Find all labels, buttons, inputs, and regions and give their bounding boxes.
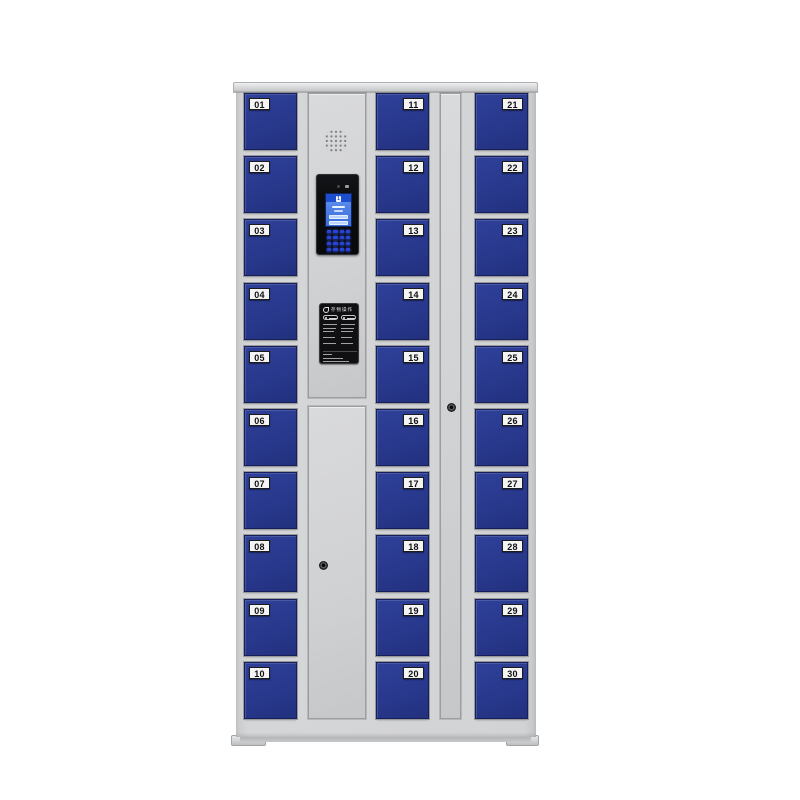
keypad-key[interactable] [327, 230, 331, 234]
locker-door-28[interactable]: 28 [475, 535, 528, 592]
locker-door-15[interactable]: 15 [376, 346, 429, 403]
locker-door-29[interactable]: 29 [475, 599, 528, 656]
control-unit: 1 [316, 174, 359, 255]
locker-number-label: 27 [502, 477, 523, 489]
locker-door-13[interactable]: 13 [376, 219, 429, 276]
locker-door-02[interactable]: 02 [244, 156, 297, 213]
keyhole-icon [447, 403, 456, 412]
locker-number-label: 19 [403, 604, 424, 616]
deposit-step-pill [323, 315, 338, 320]
speaker-grille-icon [324, 129, 348, 153]
locker-number-label: 23 [502, 224, 523, 236]
locker-door-01[interactable]: 01 [244, 93, 297, 150]
locker-door-07[interactable]: 07 [244, 472, 297, 529]
retrieve-step-pill [341, 315, 356, 320]
screen-text-line [332, 206, 345, 208]
locker-door-22[interactable]: 22 [475, 156, 528, 213]
locker-number-label: 05 [249, 351, 270, 363]
locker-number-label: 16 [403, 414, 424, 426]
locker-door-30[interactable]: 30 [475, 662, 528, 719]
locker-number-label: 18 [403, 540, 424, 552]
locker-number-label: 04 [249, 288, 270, 300]
locker-door-26[interactable]: 26 [475, 409, 528, 466]
locker-number-label: 29 [502, 604, 523, 616]
locker-number-label: 28 [502, 540, 523, 552]
locker-door-20[interactable]: 20 [376, 662, 429, 719]
locker-door-04[interactable]: 04 [244, 283, 297, 340]
locker-column-right: 21222324252627282930 [475, 92, 528, 737]
keypad-key[interactable] [346, 236, 350, 240]
locker-number-label: 03 [249, 224, 270, 236]
locker-door-27[interactable]: 27 [475, 472, 528, 529]
keypad-key[interactable] [340, 230, 344, 234]
locker-number-label: 13 [403, 224, 424, 236]
locker-door-12[interactable]: 12 [376, 156, 429, 213]
locker-door-10[interactable]: 10 [244, 662, 297, 719]
locker-column-left: 01020304050607080910 [244, 92, 297, 737]
locker-door-16[interactable]: 16 [376, 409, 429, 466]
locker-door-08[interactable]: 08 [244, 535, 297, 592]
locker-number-label: 11 [403, 98, 424, 110]
locker-door-17[interactable]: 17 [376, 472, 429, 529]
keypad-key[interactable] [333, 242, 337, 246]
locker-number-label: 20 [403, 667, 424, 679]
locker-door-21[interactable]: 21 [475, 93, 528, 150]
locker-number-label: 22 [502, 161, 523, 173]
keypad-key[interactable] [333, 236, 337, 240]
instruction-label: 存物操作 [319, 303, 359, 364]
cabinet-body: 01020304050607080910 1 [236, 92, 536, 737]
locker-number-label: 24 [502, 288, 523, 300]
locker-door-14[interactable]: 14 [376, 283, 429, 340]
keypad-key[interactable] [340, 236, 344, 240]
locker-number-label: 10 [249, 667, 270, 679]
locker-number-label: 26 [502, 414, 523, 426]
locker-number-label: 14 [403, 288, 424, 300]
locker-number-label: 09 [249, 604, 270, 616]
locker-column-middle: 11121314151617181920 [376, 92, 429, 737]
keypad-key[interactable] [327, 236, 331, 240]
keypad-key[interactable] [346, 230, 350, 234]
locker-number-label: 21 [502, 98, 523, 110]
locker-number-label: 01 [249, 98, 270, 110]
locker-door-23[interactable]: 23 [475, 219, 528, 276]
locker-number-label: 08 [249, 540, 270, 552]
locker-door-03[interactable]: 03 [244, 219, 297, 276]
phone-icon [323, 307, 329, 313]
keyhole-icon [319, 561, 328, 570]
locker-number-label: 25 [502, 351, 523, 363]
keypad-key[interactable] [340, 248, 344, 252]
screen-menu-row [329, 221, 348, 225]
instruction-title: 存物操作 [323, 307, 357, 313]
keypad-key[interactable] [333, 230, 337, 234]
keypad [327, 230, 350, 252]
locker-door-06[interactable]: 06 [244, 409, 297, 466]
cabinet-base-bar [240, 737, 531, 742]
locker-door-18[interactable]: 18 [376, 535, 429, 592]
screen-text-line [334, 210, 343, 212]
display-screen[interactable]: 1 [325, 193, 352, 227]
keypad-key[interactable] [327, 242, 331, 246]
control-column-lower-door[interactable] [308, 406, 366, 719]
locker-door-24[interactable]: 24 [475, 283, 528, 340]
divider [323, 351, 357, 352]
locker-number-label: 12 [403, 161, 424, 173]
service-column-door[interactable] [440, 93, 461, 719]
locker-door-09[interactable]: 09 [244, 599, 297, 656]
control-panel-door[interactable]: 1 存物操作 [308, 93, 366, 398]
sensor-dot-icon [337, 185, 340, 188]
locker-number-label: 15 [403, 351, 424, 363]
locker-number-label: 30 [502, 667, 523, 679]
screen-menu-row [329, 215, 348, 219]
locker-number-label: 06 [249, 414, 270, 426]
screen-badge: 1 [336, 196, 341, 202]
locker-door-25[interactable]: 25 [475, 346, 528, 403]
keypad-key[interactable] [327, 248, 331, 252]
locker-number-label: 02 [249, 161, 270, 173]
keypad-key[interactable] [346, 242, 350, 246]
locker-door-11[interactable]: 11 [376, 93, 429, 150]
locker-cabinet: 01020304050607080910 1 [233, 82, 538, 746]
keypad-key[interactable] [346, 248, 350, 252]
keypad-key[interactable] [340, 242, 344, 246]
cabinet-top-cap [233, 82, 538, 92]
locker-number-label: 07 [249, 477, 270, 489]
keypad-key[interactable] [333, 248, 337, 252]
page: 01020304050607080910 1 [0, 0, 800, 800]
camera-icon [345, 185, 349, 188]
locker-door-05[interactable]: 05 [244, 346, 297, 403]
locker-number-label: 17 [403, 477, 424, 489]
locker-door-19[interactable]: 19 [376, 599, 429, 656]
